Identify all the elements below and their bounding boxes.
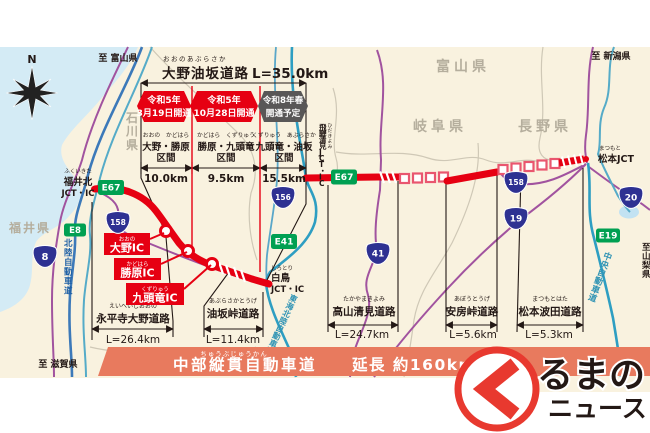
hata-name: 松本波田道路	[519, 305, 582, 318]
route41-shield-label: 41	[372, 250, 385, 260]
takayama-length: L=24.7km	[335, 329, 389, 341]
abo-name: 安房峠道路	[446, 305, 499, 318]
e67-east-shield: E67	[331, 170, 357, 185]
banner1-line2: 3月19日開通	[137, 107, 192, 119]
logo-text-line2: ニュース	[548, 394, 647, 423]
edge-to-shiga: 至 滋賀県	[38, 358, 77, 370]
banner2-line2: 10月28日開通	[193, 107, 254, 119]
edge-to-yamanashi: 至山梨県	[641, 243, 650, 280]
e67-west-shield-label: E67	[102, 184, 121, 194]
pref-toyama: 富山県	[436, 58, 490, 75]
banner-subtitle: 延長 約160km	[351, 355, 476, 374]
section1-name: 大野・勝原	[142, 141, 190, 153]
logo-text-line1: るまの	[537, 355, 645, 396]
shirotori-name: 白鳥	[271, 272, 291, 284]
e8-shield: E8	[64, 224, 86, 237]
matsumoto-furigana: まつもと	[599, 145, 621, 152]
route156-shield-label: 156	[275, 193, 291, 202]
fukuikita-name: 福井北	[63, 176, 93, 188]
pref-nagano: 長野県	[518, 119, 572, 135]
e19-shield-label: E19	[599, 232, 618, 242]
header-road-title: 大野油坂道路	[162, 65, 249, 82]
hata-furigana: まつもとはた	[532, 296, 568, 303]
route8-shield-label: 8	[42, 252, 49, 263]
takayama-furigana: たかやまきよみ	[343, 295, 385, 303]
header-road-length: L=35.0km	[252, 66, 328, 82]
route19-shield-label: 19	[510, 215, 523, 225]
road-map-infographic: おおのあぶらさか 大野油坂道路 L=35.0km 令和5年 3月19日開通 令和…	[0, 0, 650, 433]
fukuikita-sub: JCT・IC	[60, 189, 94, 199]
pref-gifu: 岐阜県	[413, 118, 467, 135]
route158-west-shield-label: 158	[110, 218, 126, 227]
e8-shield-label: E8	[69, 226, 81, 236]
logo-circle-icon	[458, 350, 536, 428]
banner-title: 中部縦貫自動車道	[173, 355, 317, 374]
aburazaka-name: 油坂峠道路	[207, 307, 260, 320]
e67-west-shield: E67	[98, 180, 124, 195]
matsumoto-node	[583, 156, 589, 162]
section2-furigana: かどはら くずりゅう	[197, 131, 255, 139]
section3-furigana: くずりゅう あぶらさか	[252, 131, 316, 139]
pref-fukui: 福井県	[8, 220, 51, 235]
banner2-line1: 令和5年	[206, 94, 240, 106]
section1-length: 10.0km	[144, 173, 188, 185]
banner3-line2: 開通予定	[266, 107, 301, 119]
eiheiji-name: 永平寺大野道路	[95, 312, 170, 325]
map-canvas: おおのあぶらさか 大野油坂道路 L=35.0km 令和5年 3月19日開通 令和…	[0, 0, 650, 433]
section3-length: 15.5km	[262, 173, 306, 185]
abo-length: L=5.6km	[449, 329, 497, 341]
kuruma-news-logo: るまの ニュース	[458, 350, 647, 428]
banner1-line1: 令和5年	[146, 94, 180, 106]
kadohara-ic-label: 勝原IC	[120, 266, 154, 280]
fukuikita-furigana: ふくいきた	[64, 168, 92, 175]
pref-ishikawa: 石川県	[125, 111, 138, 152]
section2-name: 勝原・九頭竜	[197, 141, 255, 153]
hokuriku-expwy-name: 北陸自動車道	[64, 238, 73, 297]
banner3-line1: 令和8年春	[262, 94, 304, 106]
route158-east-shield-label: 158	[508, 178, 524, 187]
edge-to-toyama: 至 富山県	[98, 52, 137, 64]
hidakiyomi-furigana: ひだきよみ	[328, 123, 333, 150]
aburazaka-length: L=11.4km	[206, 334, 260, 346]
e19-shield: E19	[596, 229, 620, 243]
e41-shield: E41	[271, 234, 297, 249]
kuzuryu-ic-label: 九頭竜IC	[131, 291, 177, 305]
shirotori-furigana: しろとり	[271, 265, 293, 272]
matsumoto-name: 松本JCT	[598, 153, 635, 165]
section1-kukan: 区間	[156, 152, 175, 164]
e41-shield-label: E41	[275, 238, 294, 248]
section1-furigana: おおの かどはら	[143, 131, 189, 139]
section2-kukan: 区間	[216, 152, 235, 164]
abo-furigana: あぼうとうげ	[454, 295, 490, 303]
section3-kukan: 区間	[274, 152, 293, 164]
route20-shield-label: 20	[625, 194, 638, 204]
hata-length: L=5.3km	[525, 329, 573, 341]
eiheiji-length: L=26.4km	[106, 334, 160, 346]
ohno-ic-label: 大野IC	[110, 241, 144, 255]
edge-to-niigata: 至 新潟県	[591, 50, 630, 62]
shirotori-sub: JCT・IC	[270, 285, 304, 295]
section3-name: 九頭竜・油坂	[254, 141, 313, 153]
header-road-furigana: おおのあぶらさか	[163, 55, 227, 63]
compass-n-label: N	[27, 53, 36, 66]
aburazaka-furigana: あぶらさかとうげ	[209, 297, 257, 305]
e67-east-shield-label: E67	[335, 173, 354, 183]
kadohara-ic-node	[183, 246, 194, 257]
section2-length: 9.5km	[208, 173, 245, 185]
takayama-name: 高山清見道路	[333, 305, 396, 318]
